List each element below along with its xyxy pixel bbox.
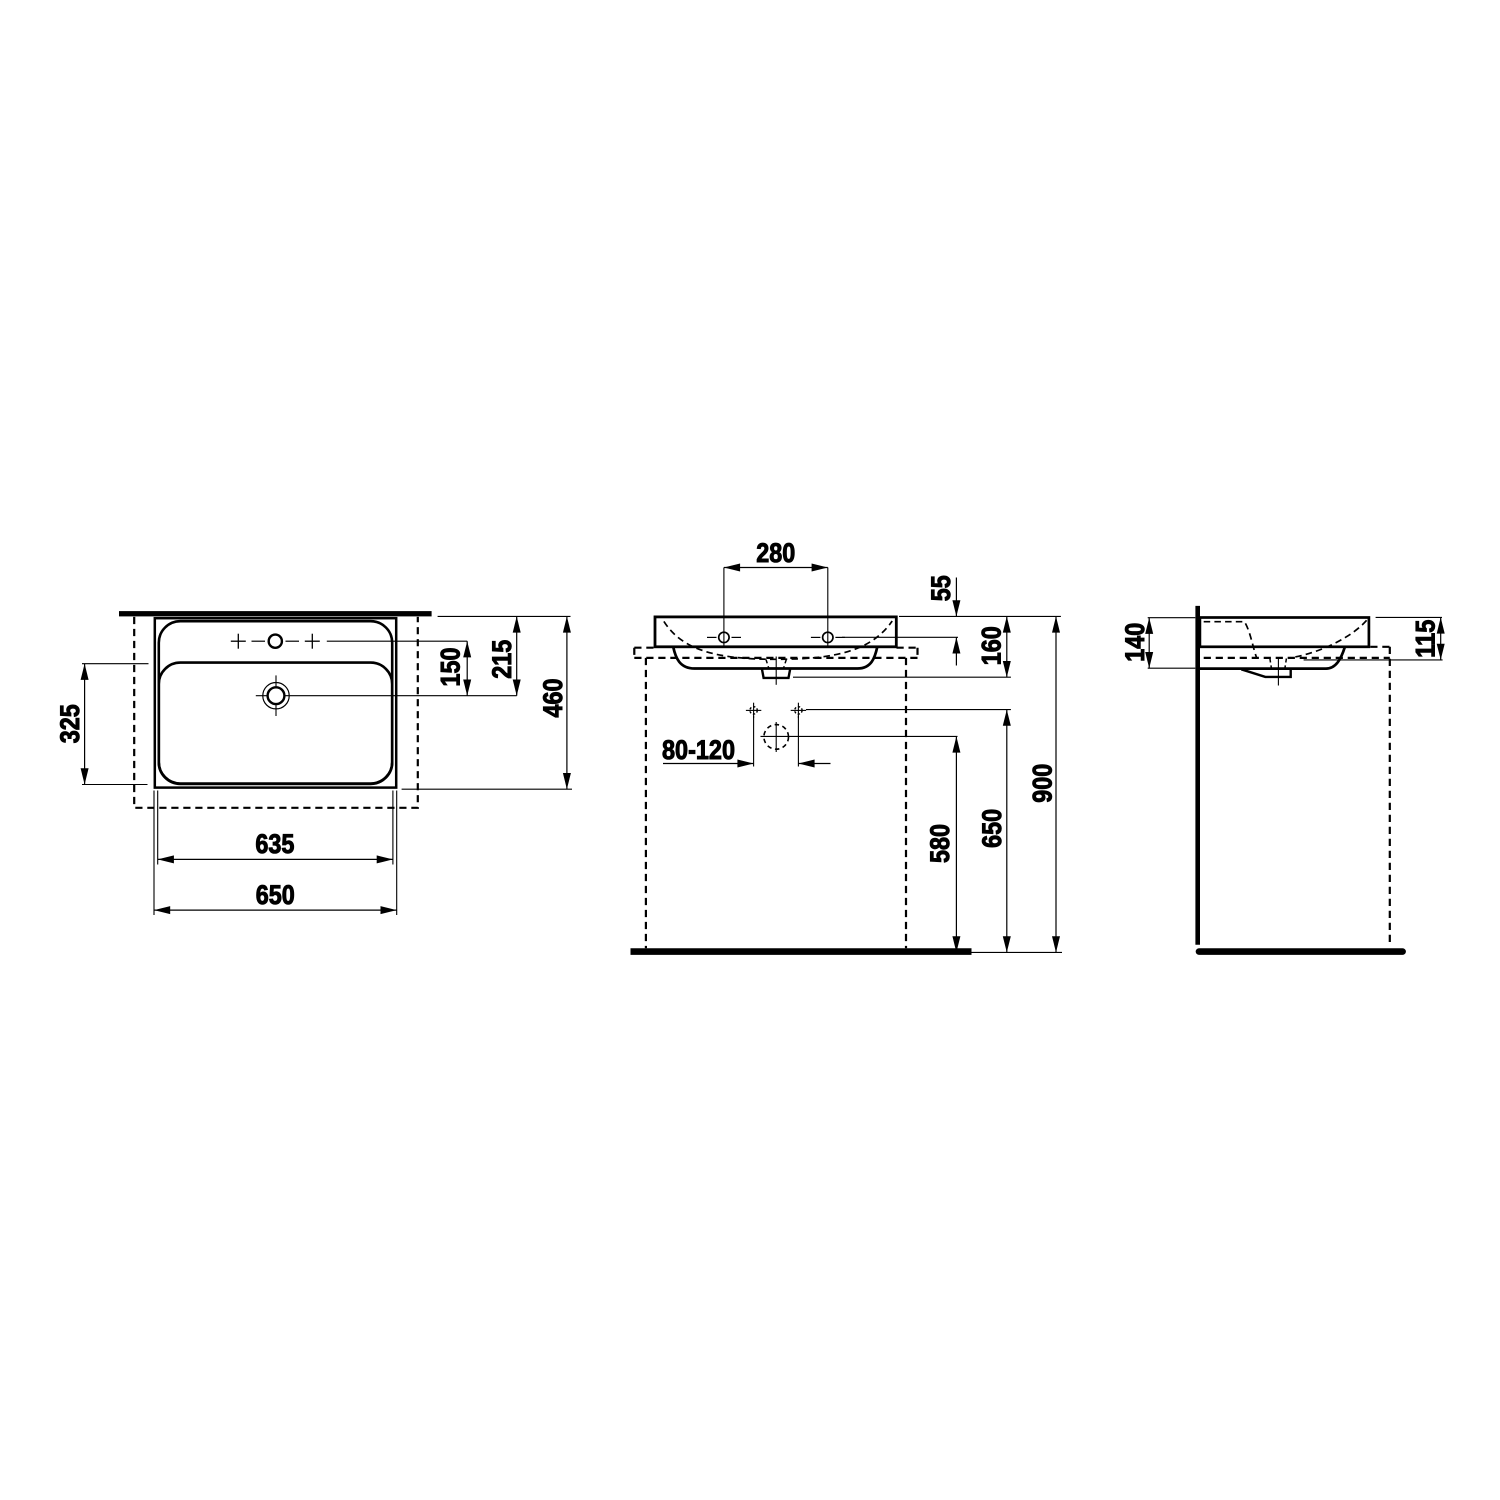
svg-text:140: 140: [1120, 623, 1150, 662]
svg-text:150: 150: [436, 648, 466, 687]
svg-text:215: 215: [487, 640, 517, 679]
svg-text:580: 580: [925, 824, 955, 863]
svg-text:160: 160: [977, 626, 1007, 665]
svg-text:650: 650: [977, 809, 1007, 848]
svg-text:115: 115: [1411, 620, 1441, 658]
svg-text:280: 280: [756, 538, 795, 568]
svg-text:325: 325: [55, 704, 85, 743]
svg-text:650: 650: [256, 880, 295, 910]
svg-text:900: 900: [1028, 764, 1058, 803]
svg-text:460: 460: [538, 679, 568, 718]
svg-text:635: 635: [255, 829, 294, 859]
svg-text:55: 55: [926, 575, 956, 601]
svg-text:80-120: 80-120: [662, 735, 735, 765]
